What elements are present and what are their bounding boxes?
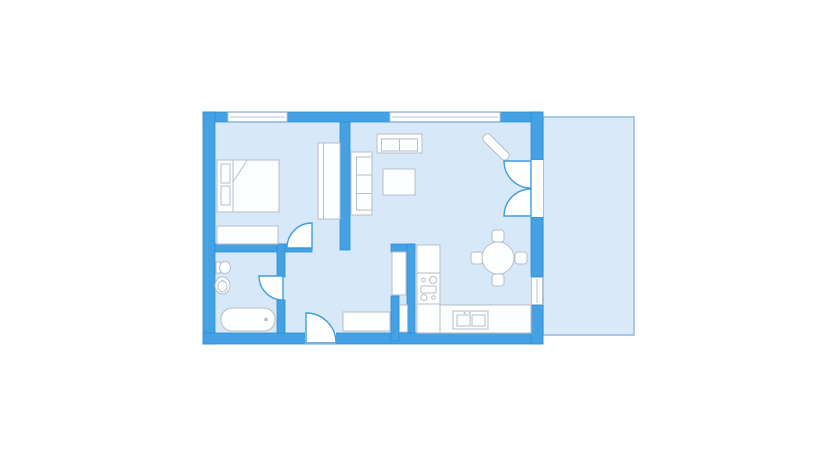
bathtub-drain [264, 318, 268, 322]
sofa-seat [357, 157, 373, 210]
wall-left [203, 112, 215, 344]
floor-plan-svg [0, 0, 834, 460]
wall-bathroom-east-lower [277, 300, 285, 333]
dining-chair-north [492, 230, 504, 242]
wall-bottom [203, 333, 543, 344]
bed-pillow-2 [221, 186, 230, 205]
kitchen-faucet-dot-2 [469, 312, 471, 314]
kitchen-base-cabinet [417, 304, 440, 333]
bath-basin-inner [218, 281, 227, 292]
dining-table [482, 242, 514, 274]
hall-sideboard [343, 312, 390, 331]
toilet-bowl [220, 262, 231, 274]
fridge [417, 245, 440, 273]
wardrobe [318, 143, 340, 219]
stove-burner-small-1 [422, 278, 426, 282]
bedroom-dresser [217, 226, 278, 244]
bath-basin-faucet-dot [222, 280, 224, 282]
kitchen-faucet-dot-1 [464, 312, 466, 314]
stove-burner-small-2 [432, 296, 436, 300]
wall-right-mid [531, 217, 543, 277]
balcony-floor [543, 117, 634, 335]
dining-chair-east [515, 252, 527, 264]
stove-burner-large-2 [421, 295, 427, 301]
dining-chair-west [471, 252, 483, 264]
wall-bedroom-divider [340, 122, 350, 250]
coffee-table [383, 169, 415, 195]
wall-right-lower [531, 305, 543, 344]
hall-closet-lower [400, 305, 408, 332]
balcony-threshold [531, 160, 543, 217]
bed-pillow-1 [221, 164, 230, 183]
hall-closet-upper [392, 252, 406, 295]
floor-plan [0, 0, 834, 460]
dining-chair-south [492, 274, 504, 286]
stove-oven [421, 286, 436, 293]
wall-bathroom-east-upper [277, 244, 285, 277]
wall-closet-east [407, 244, 415, 333]
stove-burner-large-1 [430, 277, 437, 284]
wall-closet-west [391, 296, 399, 341]
kitchen-sink-basin-1 [457, 315, 470, 326]
kitchen-sink-basin-2 [472, 315, 485, 326]
wall-right-upper [531, 112, 543, 160]
